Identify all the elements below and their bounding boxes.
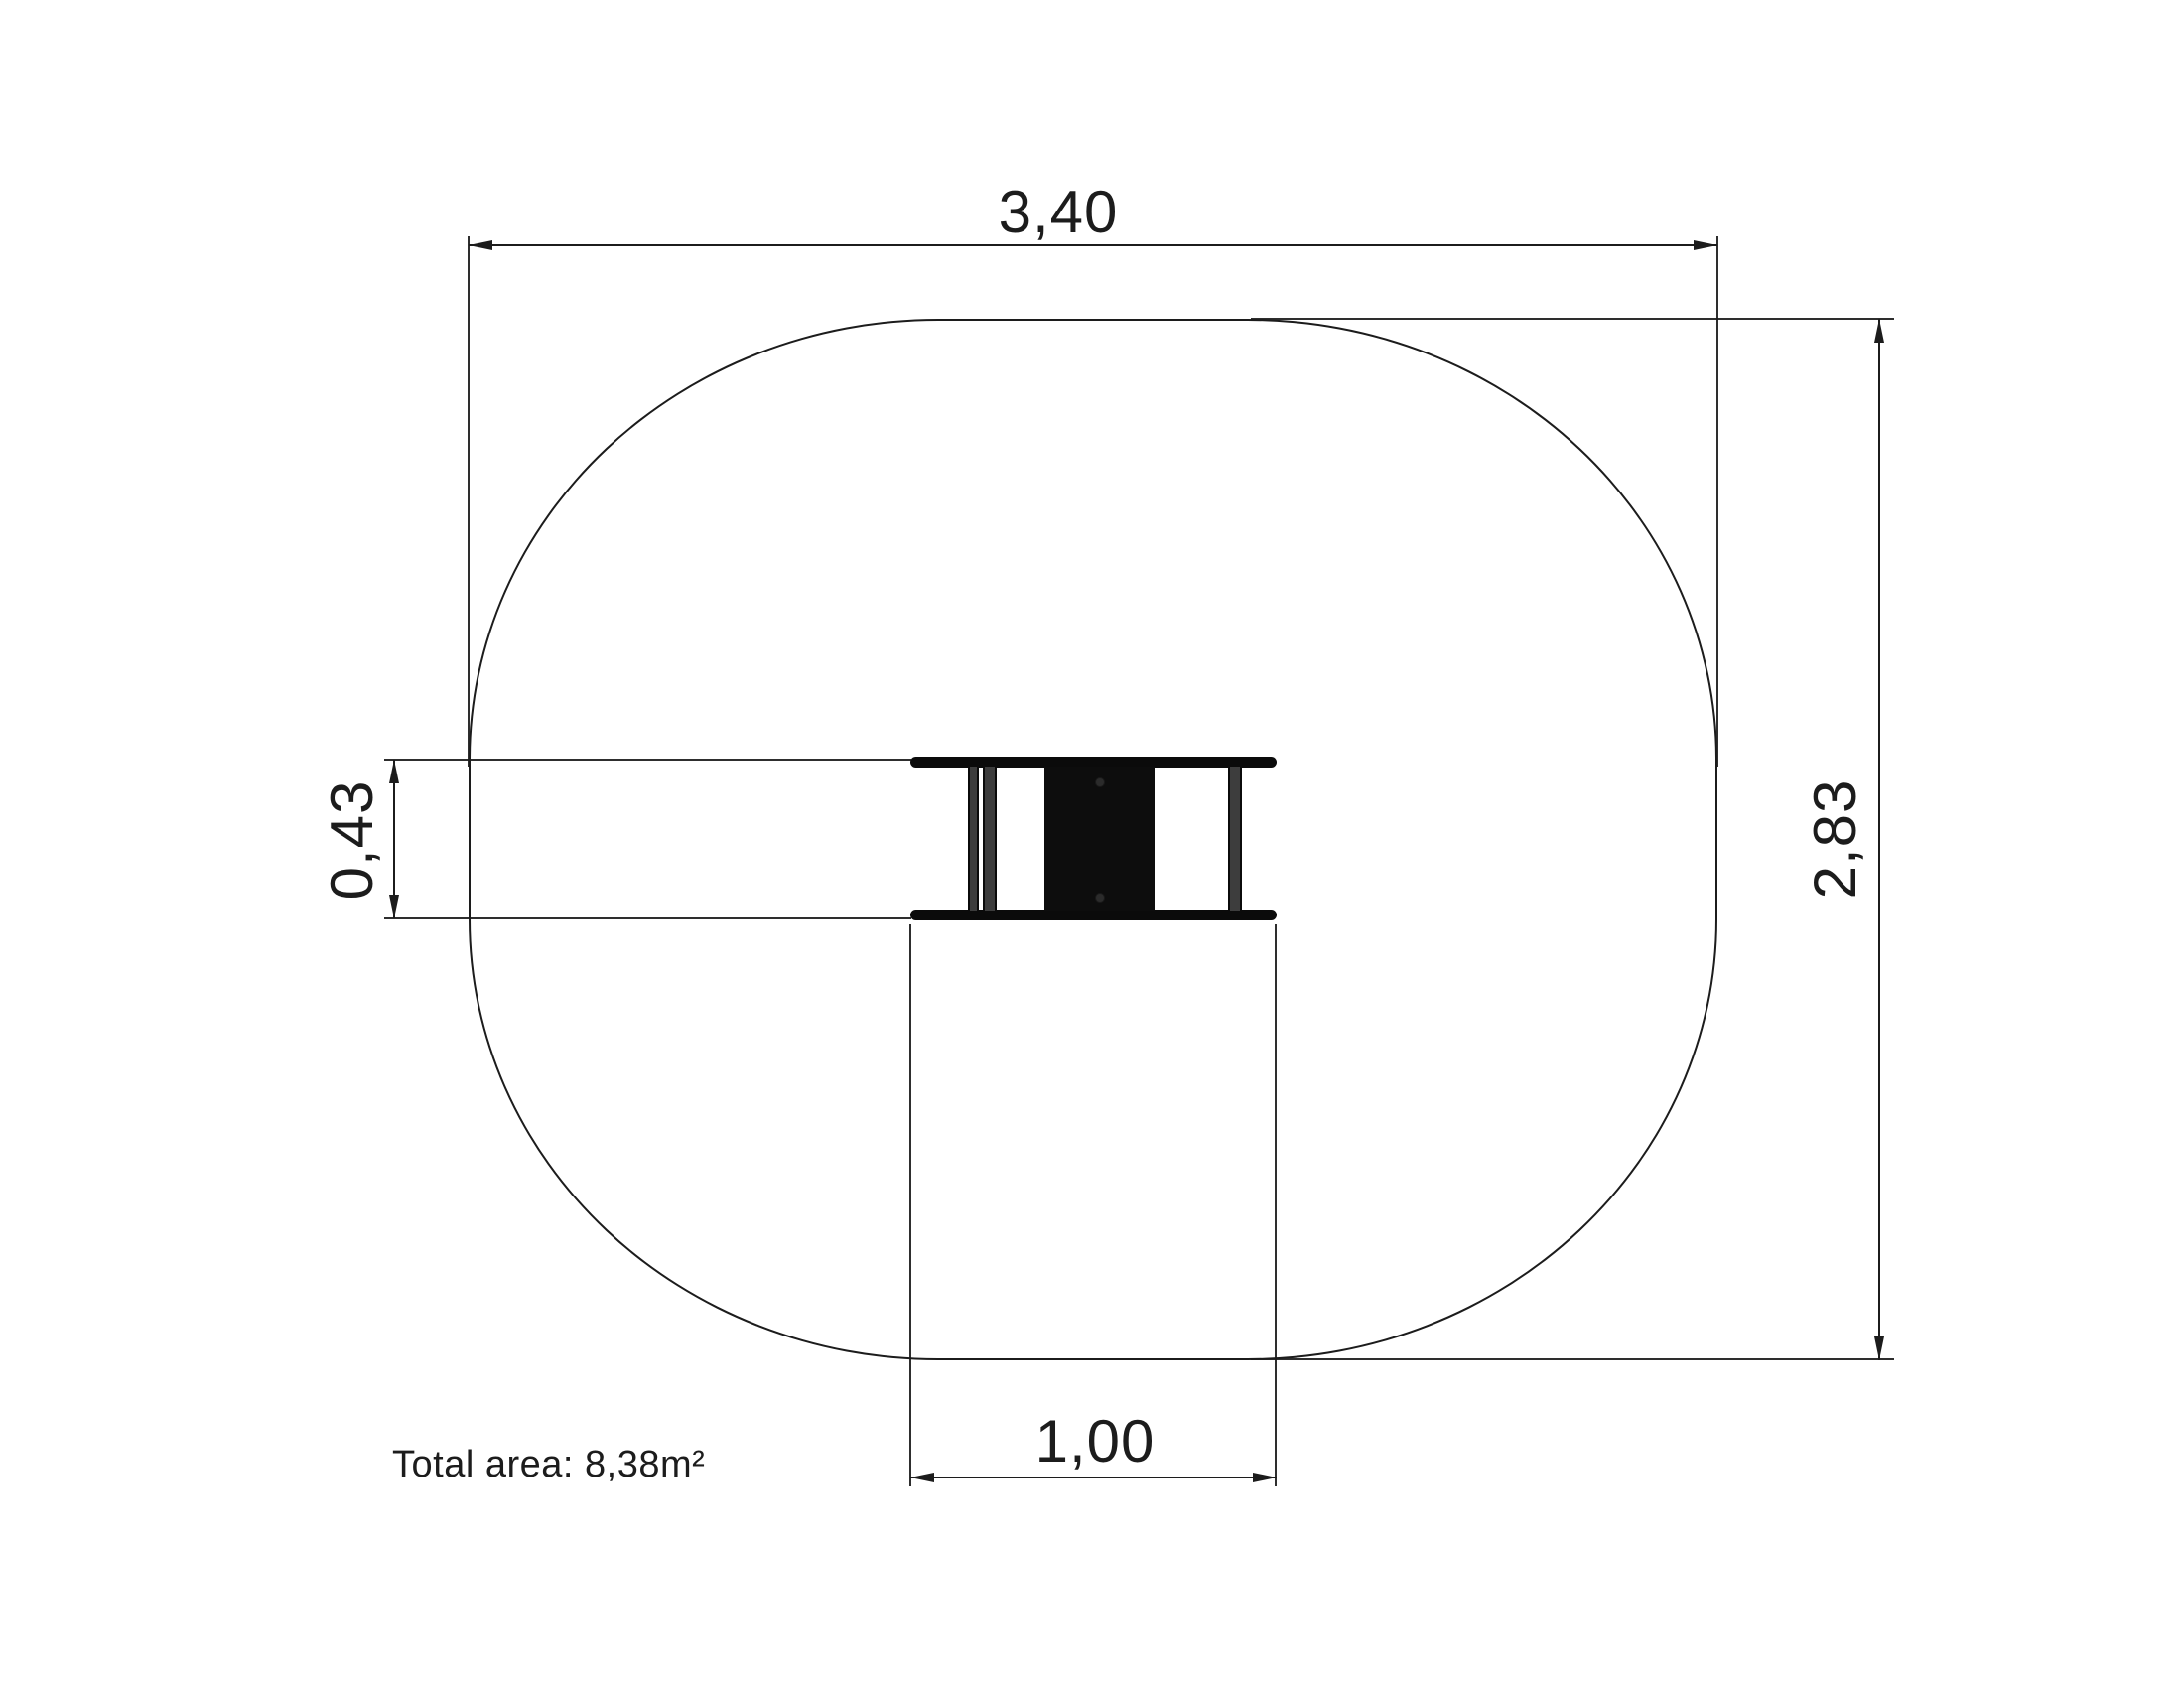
equipment-width-arrowhead-left [910,1473,934,1482]
spinner-post-right [1228,767,1242,911]
equipment-width-extension-line-left [909,924,911,1486]
overall-width-arrowhead-right [1694,240,1717,250]
technical-drawing-canvas: 3,40 2,83 0,43 1,00 Total area: 8,38m² [0,0,2184,1688]
equipment-width-dimension-label: 1,00 [946,1412,1244,1472]
equipment-width-extension-line-right [1275,924,1277,1486]
overall-width-dimension-label: 3,40 [909,183,1207,242]
overall-depth-dimension-label: 2,83 [1806,740,1865,938]
overall-width-extension-line-left [468,236,470,767]
equipment-depth-arrowhead-bottom [389,895,399,918]
equipment-depth-extension-line-bottom [384,917,911,919]
spinner-hub-bolt-bottom [1095,893,1105,903]
equipment-depth-dimension-label: 0,43 [323,741,382,939]
total-area-label: Total area: 8,38m² [392,1445,705,1484]
spinner-hub-bolt-top [1095,777,1105,787]
overall-depth-dimension-line [1878,319,1880,1360]
overall-width-extension-line-right [1716,236,1718,767]
equipment-width-arrowhead-right [1253,1473,1277,1482]
overall-width-arrowhead-left [469,240,492,250]
overall-depth-extension-line-top [1251,318,1894,320]
equipment-depth-arrowhead-top [389,760,399,783]
spinner-post-left-inner [983,767,997,911]
spinner-center-hub [1044,767,1155,911]
equipment-width-dimension-line [910,1477,1277,1478]
spinner-bottom-platform [910,910,1277,920]
overall-depth-arrowhead-bottom [1874,1336,1884,1360]
equipment-depth-extension-line-top [384,759,911,761]
overall-depth-extension-line-bottom [1251,1358,1894,1360]
overall-width-dimension-line [469,244,1717,246]
overall-depth-arrowhead-top [1874,319,1884,343]
spinner-post-left-outer [968,767,979,911]
